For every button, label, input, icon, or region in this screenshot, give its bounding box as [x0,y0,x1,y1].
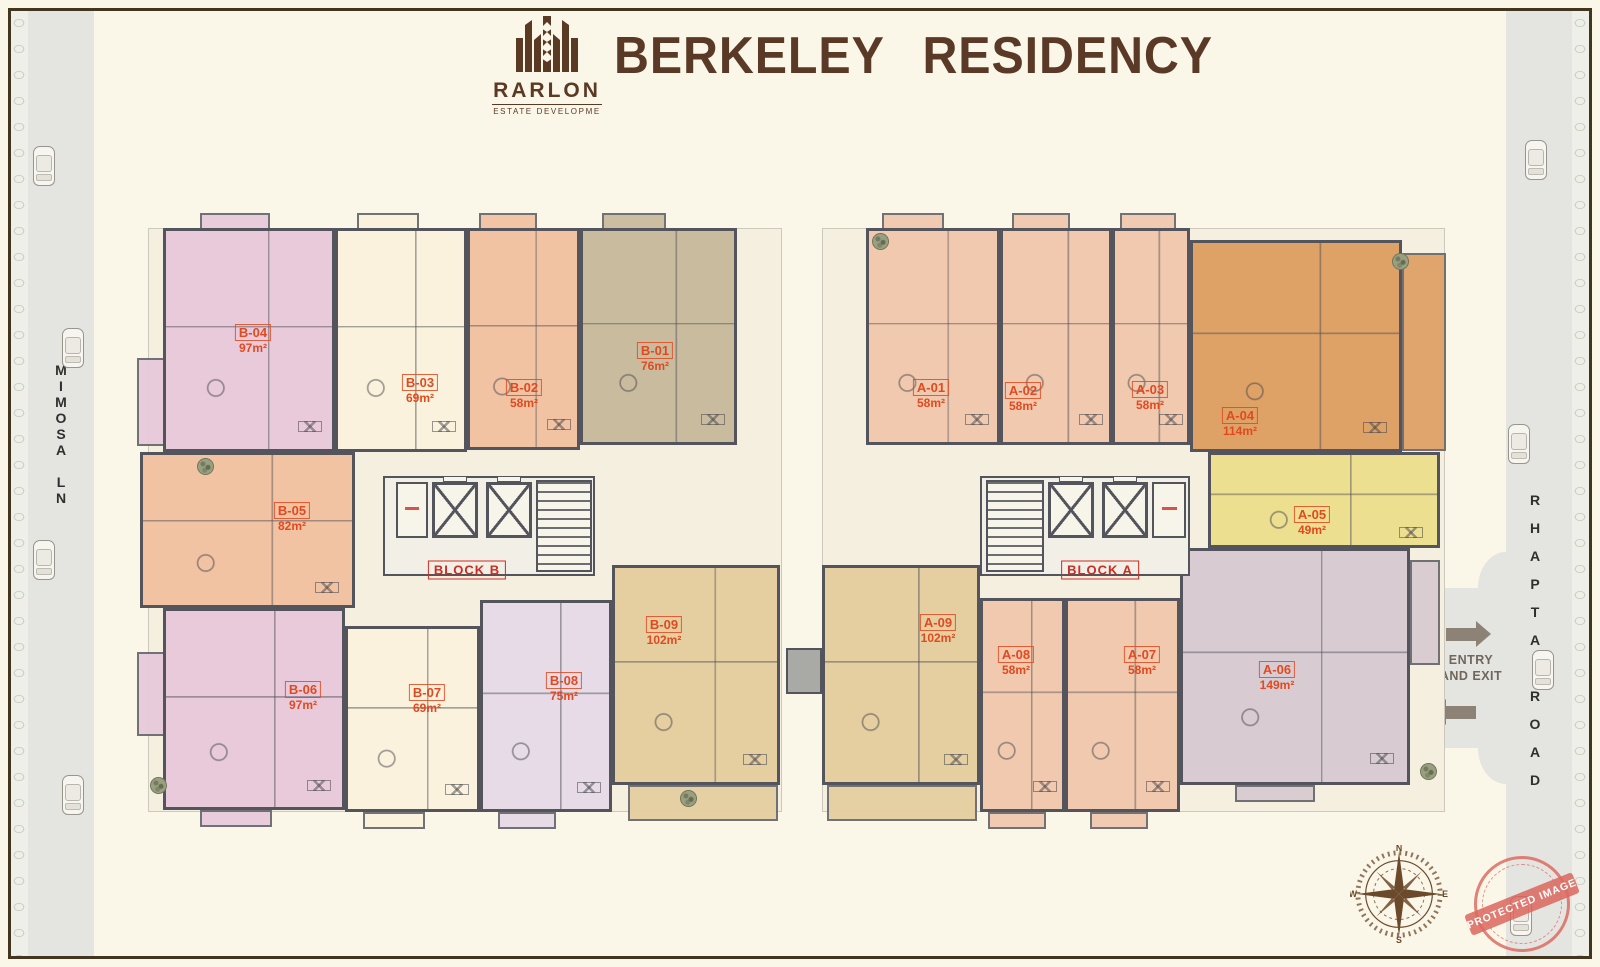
unit-id-A-09: A-09 [920,614,956,631]
balcony [1402,253,1446,451]
unit-A-07 [1065,598,1180,812]
unit-label-A-09: A-09102m² [920,614,956,646]
unit-label-B-01: B-0176m² [637,342,673,374]
compass-rose-icon: N E S W [1350,845,1448,948]
unit-label-A-04: A-04114m² [1222,407,1258,439]
unit-label-B-05: B-0582m² [274,502,310,534]
unit-B-07 [345,626,480,812]
tree-icon [1420,763,1437,780]
unit-id-B-04: B-04 [235,324,271,341]
car-icon [33,146,55,186]
balcony [1410,560,1440,665]
service-shaft-icon [1152,482,1186,538]
unit-label-B-04: B-0497m² [235,324,271,356]
elevator-shaft-icon [1048,482,1094,538]
unit-area-A-06: 149m² [1259,678,1295,693]
unit-id-A-08: A-08 [998,646,1034,663]
unit-area-A-08: 58m² [998,663,1034,678]
balcony [827,785,977,821]
unit-area-A-01: 58m² [913,396,949,411]
unit-area-B-07: 69m² [409,701,445,716]
elevator-shaft-icon [432,482,478,538]
unit-B-05 [140,452,355,608]
unit-area-A-07: 58m² [1124,663,1160,678]
unit-label-B-02: B-0258m² [506,379,542,411]
unit-label-B-03: B-0369m² [402,374,438,406]
unit-id-A-03: A-03 [1132,381,1168,398]
unit-label-B-09: B-09102m² [646,616,682,648]
floor-plan-canvas: MIMOSA LN RHAPTA ROAD ENTRY AND EXIT [0,0,1600,967]
unit-area-B-06: 97m² [285,698,321,713]
tree-icon [1392,253,1409,270]
tree-icon [150,777,167,794]
elevator-shaft-icon [486,482,532,538]
unit-id-B-05: B-05 [274,502,310,519]
unit-label-A-06: A-06149m² [1259,661,1295,693]
unit-B-03 [335,228,467,452]
balcony [1235,785,1315,802]
unit-area-B-09: 102m² [646,633,682,648]
compass-s-label: S [1396,935,1402,943]
unit-id-B-08: B-08 [546,672,582,689]
unit-id-A-05: A-05 [1294,506,1330,523]
unit-area-B-05: 82m² [274,519,310,534]
unit-area-A-05: 49m² [1294,523,1330,538]
block-label-A: BLOCK A [1061,561,1139,580]
car-icon [1508,424,1530,464]
unit-area-B-04: 97m² [235,341,271,356]
compass-w-label: W [1350,889,1358,899]
balcony [498,812,556,829]
unit-id-A-07: A-07 [1124,646,1160,663]
unit-area-A-09: 102m² [920,631,956,646]
compass-n-label: N [1396,845,1402,853]
unit-area-B-03: 69m² [402,391,438,406]
unit-label-B-08: B-0875m² [546,672,582,704]
compass-e-label: E [1442,889,1448,899]
tree-icon [872,233,889,250]
balcony [200,810,272,827]
unit-area-A-03: 58m² [1132,398,1168,413]
unit-label-A-01: A-0158m² [913,379,949,411]
unit-id-B-01: B-01 [637,342,673,359]
unit-area-B-08: 75m² [546,689,582,704]
unit-label-A-05: A-0549m² [1294,506,1330,538]
unit-B-09 [612,565,780,785]
unit-A-08 [980,598,1065,812]
tree-icon [680,790,697,807]
car-icon [1525,140,1547,180]
unit-label-A-02: A-0258m² [1005,382,1041,414]
unit-A-01 [866,228,1000,445]
car-icon [62,328,84,368]
unit-area-B-02: 58m² [506,396,542,411]
unit-id-A-06: A-06 [1259,661,1295,678]
unit-label-B-07: B-0769m² [409,684,445,716]
staircase-icon [536,480,592,572]
car-icon [1532,650,1554,690]
balcony [1090,812,1148,829]
staircase-icon [986,480,1044,572]
car-icon [33,540,55,580]
balcony [628,785,778,821]
balcony [137,358,165,446]
unit-label-A-03: A-0358m² [1132,381,1168,413]
unit-label-B-06: B-0697m² [285,681,321,713]
block-connector [786,648,822,694]
service-shaft-icon [396,482,428,538]
unit-id-B-07: B-07 [409,684,445,701]
unit-id-A-01: A-01 [913,379,949,396]
unit-id-B-09: B-09 [646,616,682,633]
balcony [137,652,165,736]
block-label-B: BLOCK B [428,561,506,580]
unit-id-B-02: B-02 [506,379,542,396]
unit-A-09 [822,565,980,785]
unit-B-02 [467,228,580,450]
unit-area-B-01: 76m² [637,359,673,374]
unit-B-01 [580,228,737,445]
unit-label-A-07: A-0758m² [1124,646,1160,678]
elevator-shaft-icon [1102,482,1148,538]
unit-area-A-02: 58m² [1005,399,1041,414]
unit-label-A-08: A-0858m² [998,646,1034,678]
unit-area-A-04: 114m² [1222,424,1258,439]
balcony [363,812,425,829]
unit-id-B-06: B-06 [285,681,321,698]
car-icon [62,775,84,815]
tree-icon [197,458,214,475]
unit-B-08 [480,600,612,812]
floor-plan: BLOCK BBLOCK AB-0497m²B-0369m²B-0258m²B-… [0,0,1600,967]
unit-id-B-03: B-03 [402,374,438,391]
unit-id-A-02: A-02 [1005,382,1041,399]
unit-id-A-04: A-04 [1222,407,1258,424]
balcony [988,812,1046,829]
protected-image-stamp: PROTECTED IMAGE [1474,856,1570,952]
